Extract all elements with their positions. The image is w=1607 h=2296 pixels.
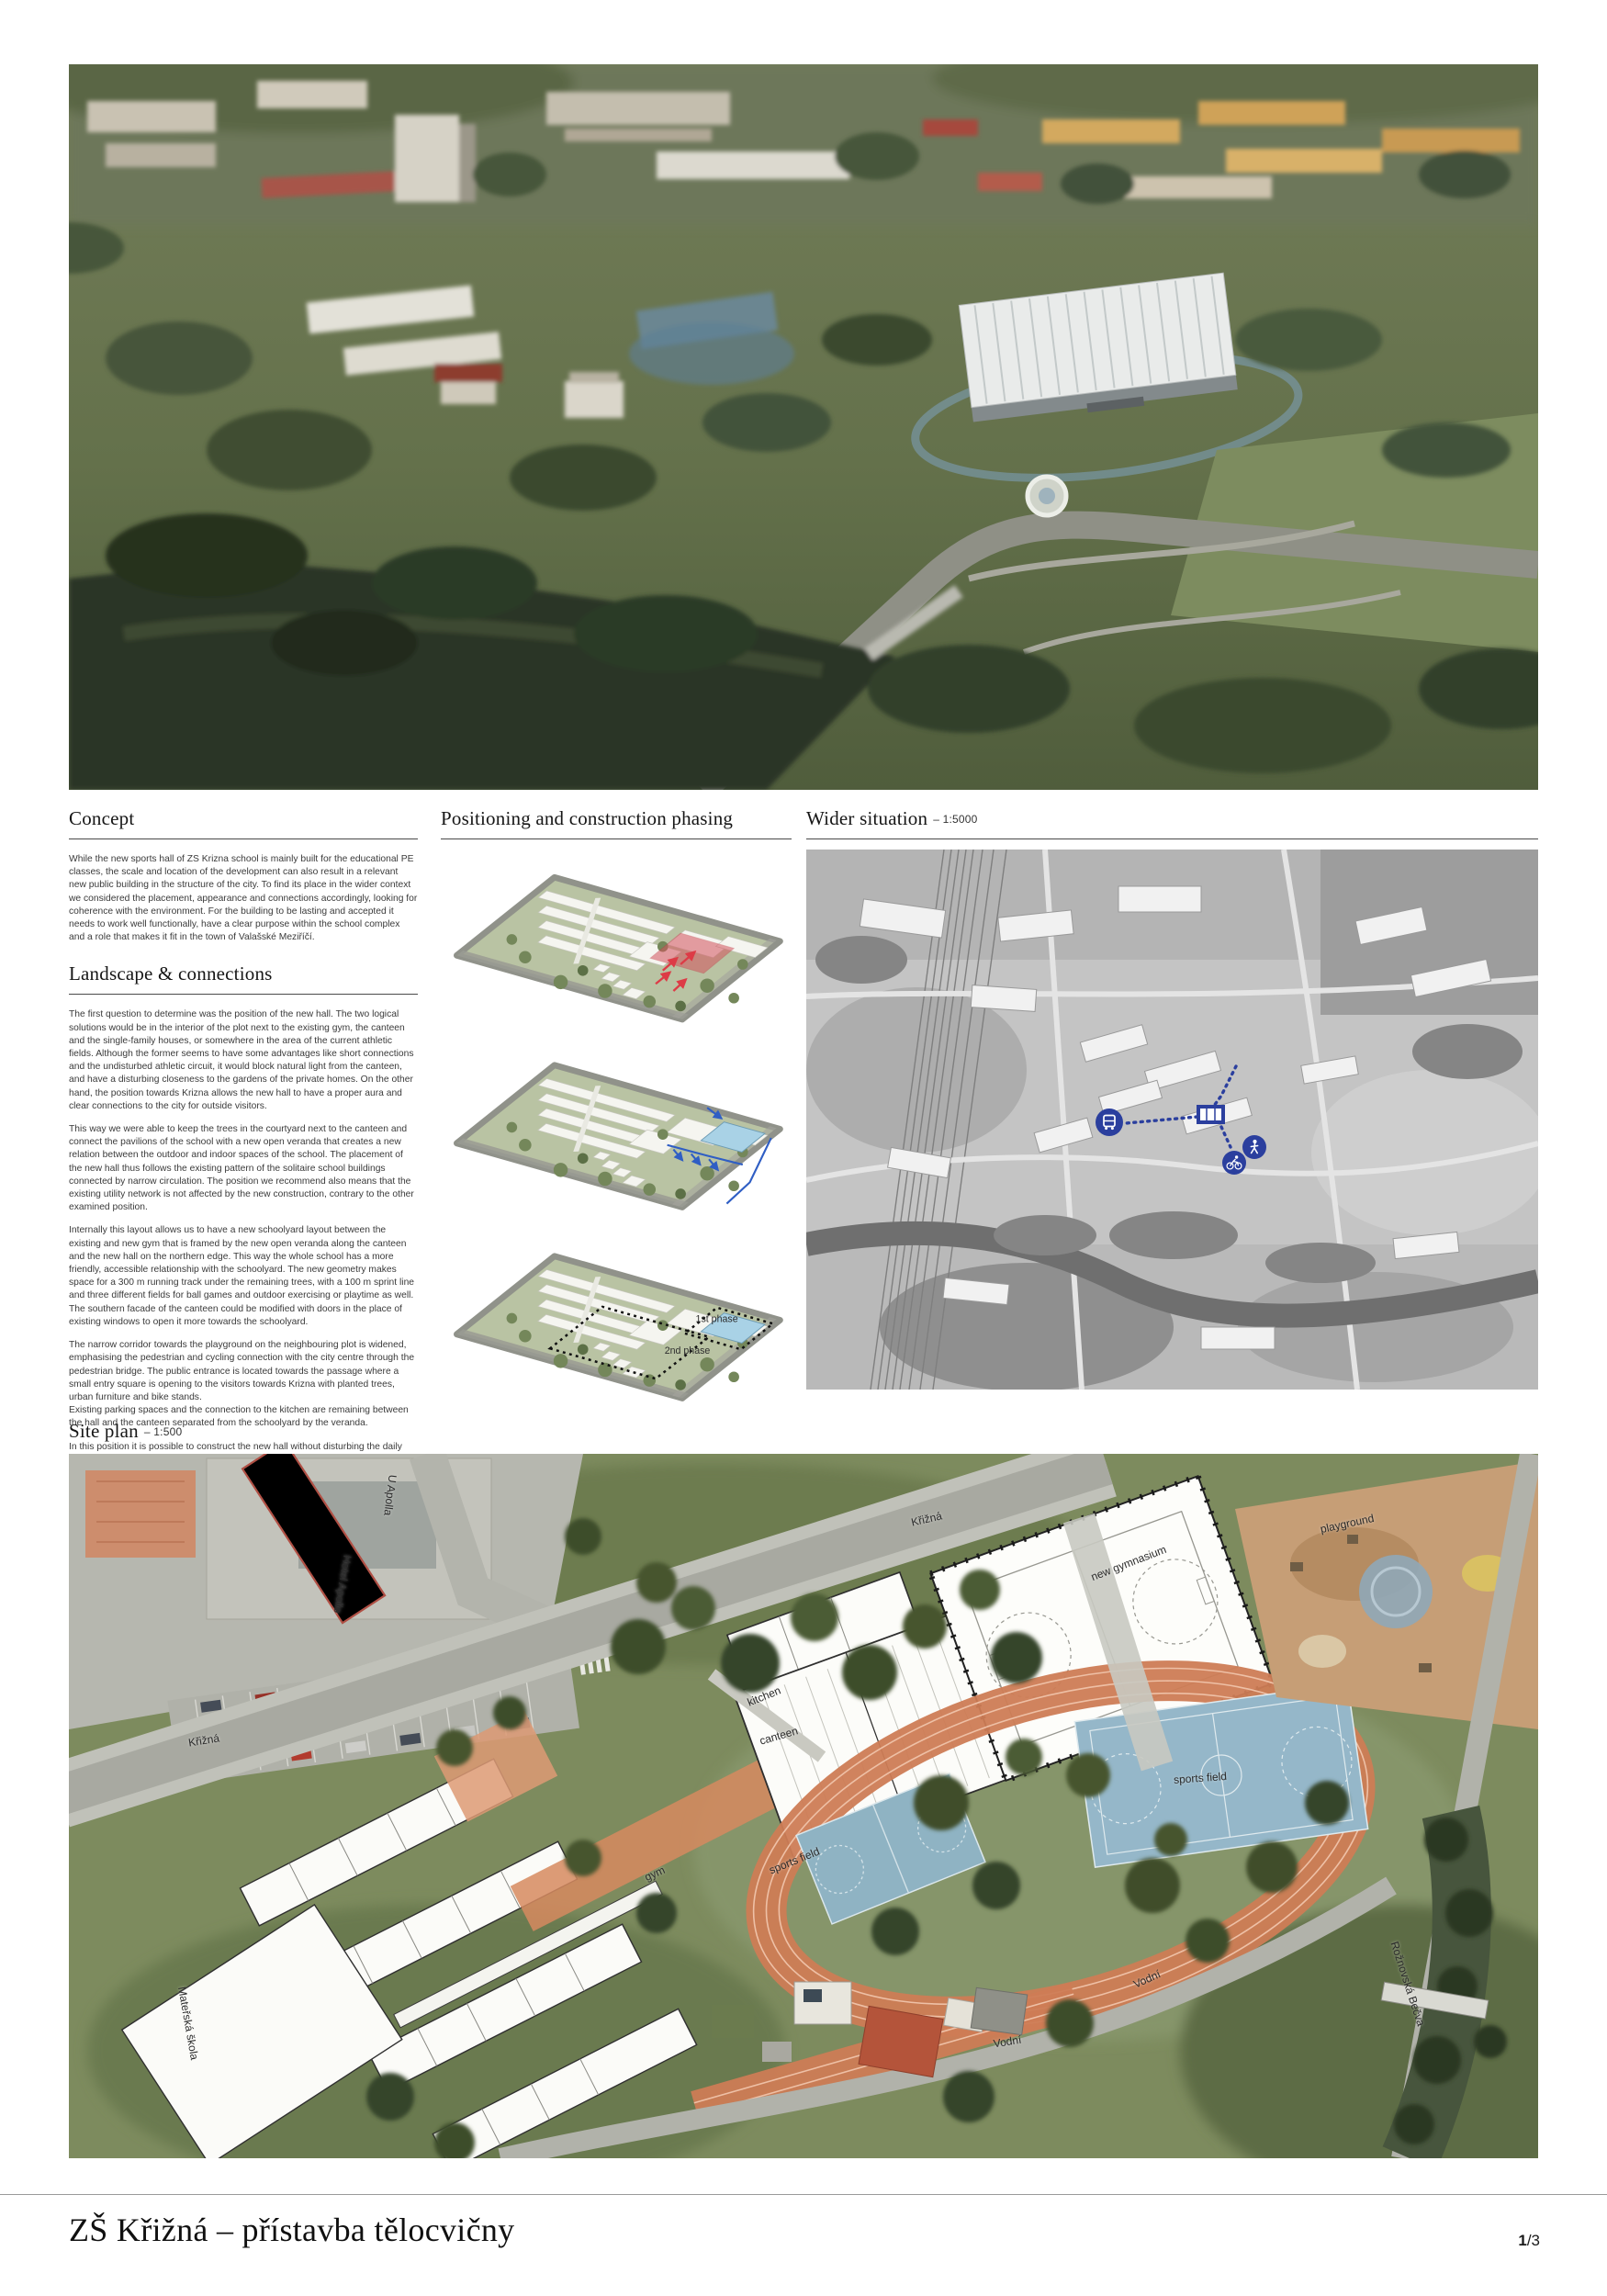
siteplan-heading: Site plan– 1:500 bbox=[69, 1420, 1538, 1443]
siteplan-heading-row: Site plan– 1:500 bbox=[69, 1420, 1538, 1443]
landscape-paragraph-2: This way we were able to keep the trees … bbox=[69, 1123, 418, 1214]
phasing-diagram-phases: 1st phase 2nd phase bbox=[441, 1226, 792, 1406]
cyclist-icon bbox=[1222, 1151, 1246, 1175]
landscape-heading: Landscape & connections bbox=[69, 962, 418, 995]
competition-board-page: Concept While the new sports hall of ZS … bbox=[0, 0, 1607, 2296]
hero-aerial-rendering bbox=[69, 64, 1538, 790]
page-number-current: 1 bbox=[1518, 2232, 1526, 2249]
wider-scale: – 1:5000 bbox=[933, 813, 977, 826]
phasing-heading: Positioning and construction phasing bbox=[441, 807, 792, 839]
siteplan-heading-text: Site plan bbox=[69, 1420, 139, 1442]
board-title: ZŠ Křižná – přístavba tělocvičny bbox=[69, 2211, 514, 2249]
phase2-label: 2nd phase bbox=[665, 1345, 711, 1356]
new-hall-marker bbox=[1198, 1107, 1223, 1122]
wider-situation-column: Wider situation– 1:5000 bbox=[806, 807, 1538, 1390]
phasing-column: Positioning and construction phasing bbox=[441, 807, 792, 1406]
concept-column: Concept While the new sports hall of ZS … bbox=[69, 807, 418, 1490]
wider-heading: Wider situation– 1:5000 bbox=[806, 807, 1538, 839]
concept-body: While the new sports hall of ZS Krizna s… bbox=[69, 853, 418, 944]
concept-paragraph: While the new sports hall of ZS Krizna s… bbox=[69, 853, 418, 944]
landscape-paragraph-1: The first question to determine was the … bbox=[69, 1008, 418, 1113]
entry-plaza-salmon bbox=[85, 1470, 196, 1558]
site-plan-image: U Apolla Hotel Apollo Křižná Křižná new … bbox=[69, 1454, 1538, 2158]
page-number-total: /3 bbox=[1527, 2232, 1540, 2249]
landscape-paragraph-4: The narrow corridor towards the playgrou… bbox=[69, 1339, 418, 1404]
concept-heading: Concept bbox=[69, 807, 418, 839]
site-plan-graphic bbox=[69, 1454, 1538, 2158]
pedestrian-icon bbox=[1242, 1135, 1266, 1159]
landscape-body: The first question to determine was the … bbox=[69, 1008, 418, 1480]
phase1-label: 1st phase bbox=[696, 1313, 738, 1324]
siteplan-scale: – 1:500 bbox=[144, 1425, 182, 1438]
phasing-diagram-position bbox=[441, 850, 792, 1024]
bus-icon bbox=[1096, 1109, 1123, 1136]
wider-heading-text: Wider situation bbox=[806, 807, 927, 829]
footer-divider bbox=[0, 2194, 1607, 2195]
landscape-paragraph-3: Internally this layout allows us to have… bbox=[69, 1224, 418, 1329]
hero-rendering-graphic bbox=[69, 64, 1538, 790]
phasing-diagram-connections bbox=[441, 1035, 792, 1215]
page-number: 1/3 bbox=[1518, 2232, 1540, 2250]
wider-situation-map bbox=[806, 850, 1538, 1390]
